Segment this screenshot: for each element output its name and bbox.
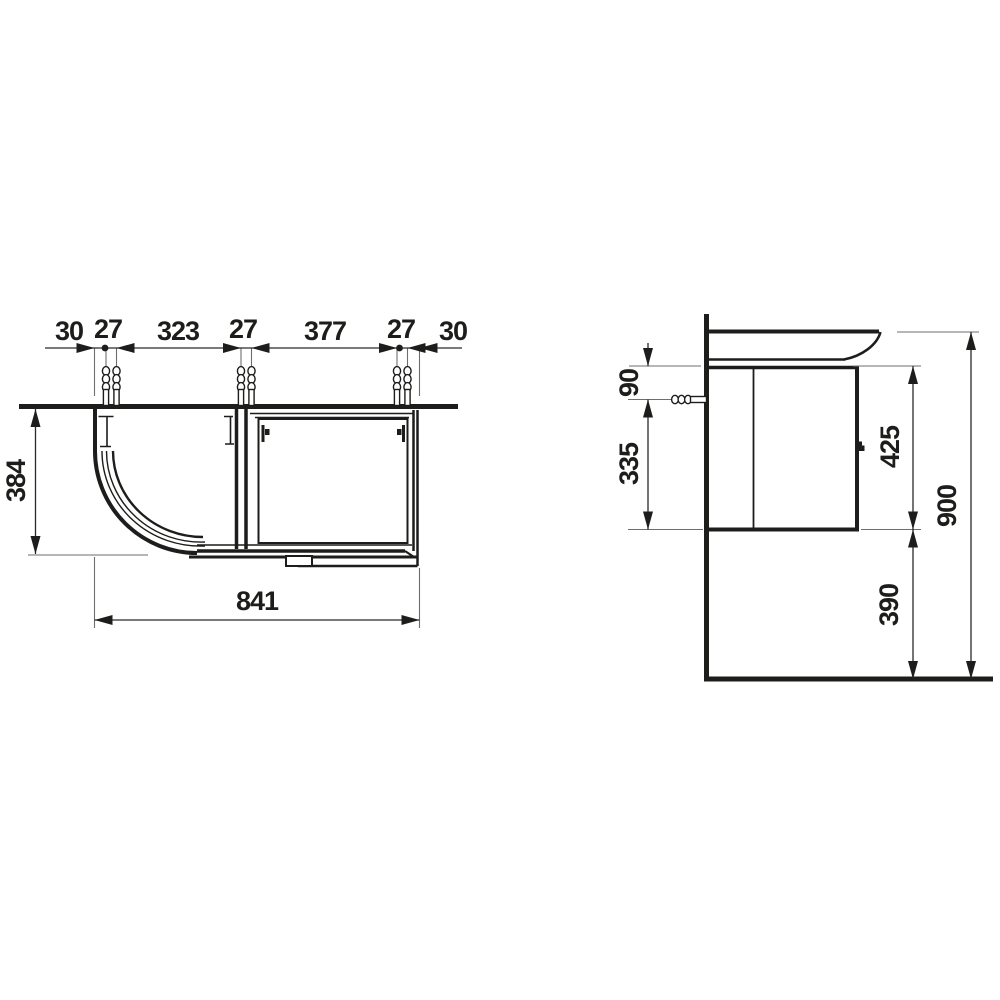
dim-label-841: 841 — [236, 586, 279, 616]
width-dimension: 841 — [95, 586, 420, 625]
plan-view: 30 27 323 27 377 27 30 — [1, 314, 467, 628]
cabinet-plan-outline — [95, 409, 418, 566]
hinge-icon — [397, 425, 404, 442]
depth-dimension: 384 — [1, 409, 41, 554]
wall-anchor-icon — [404, 367, 411, 406]
dim-label-335: 335 — [614, 442, 644, 485]
hinge-icon — [263, 425, 270, 442]
wall-anchor-icon — [237, 367, 244, 406]
washbasin-profile — [708, 332, 881, 360]
wall-anchor-icon — [248, 367, 255, 406]
dim-label-390: 390 — [874, 584, 904, 626]
dim-label-384: 384 — [1, 459, 31, 502]
extension-lines — [28, 348, 420, 628]
left-dimension-column: 90 335 — [614, 343, 703, 530]
dim-label-30-right: 30 — [439, 316, 467, 346]
wall-anchor-icons — [102, 367, 411, 406]
dimension-arrows — [77, 343, 438, 353]
technical-drawing-page: 30 27 323 27 377 27 30 — [0, 0, 1000, 1000]
dim-label-425: 425 — [875, 425, 905, 468]
wall-anchor-icon — [113, 367, 120, 406]
door-handle — [857, 442, 865, 452]
dim-label-323: 323 — [157, 316, 200, 346]
drawing-svg: 30 27 323 27 377 27 30 — [0, 0, 1000, 1000]
dim-label-27-c: 27 — [387, 314, 415, 344]
wall-anchor-icon — [672, 395, 707, 403]
wall-anchor-icon — [102, 367, 109, 406]
dim-label-377: 377 — [304, 316, 346, 346]
side-view: 90 335 425 390 900 — [614, 314, 993, 682]
dim-label-27-b: 27 — [229, 314, 257, 344]
wall-anchor-icon — [393, 367, 400, 406]
dim-label-27-a: 27 — [94, 314, 122, 344]
cabinet-side-outline — [708, 366, 865, 531]
top-dimension-chain: 30 27 323 27 377 27 30 — [45, 314, 467, 353]
right-dimension-column: 425 390 — [853, 366, 921, 679]
dim-label-900: 900 — [932, 485, 962, 527]
dim-label-30-left: 30 — [55, 316, 83, 346]
dim-label-90: 90 — [614, 369, 644, 397]
total-height-dimension: 900 — [897, 332, 979, 679]
